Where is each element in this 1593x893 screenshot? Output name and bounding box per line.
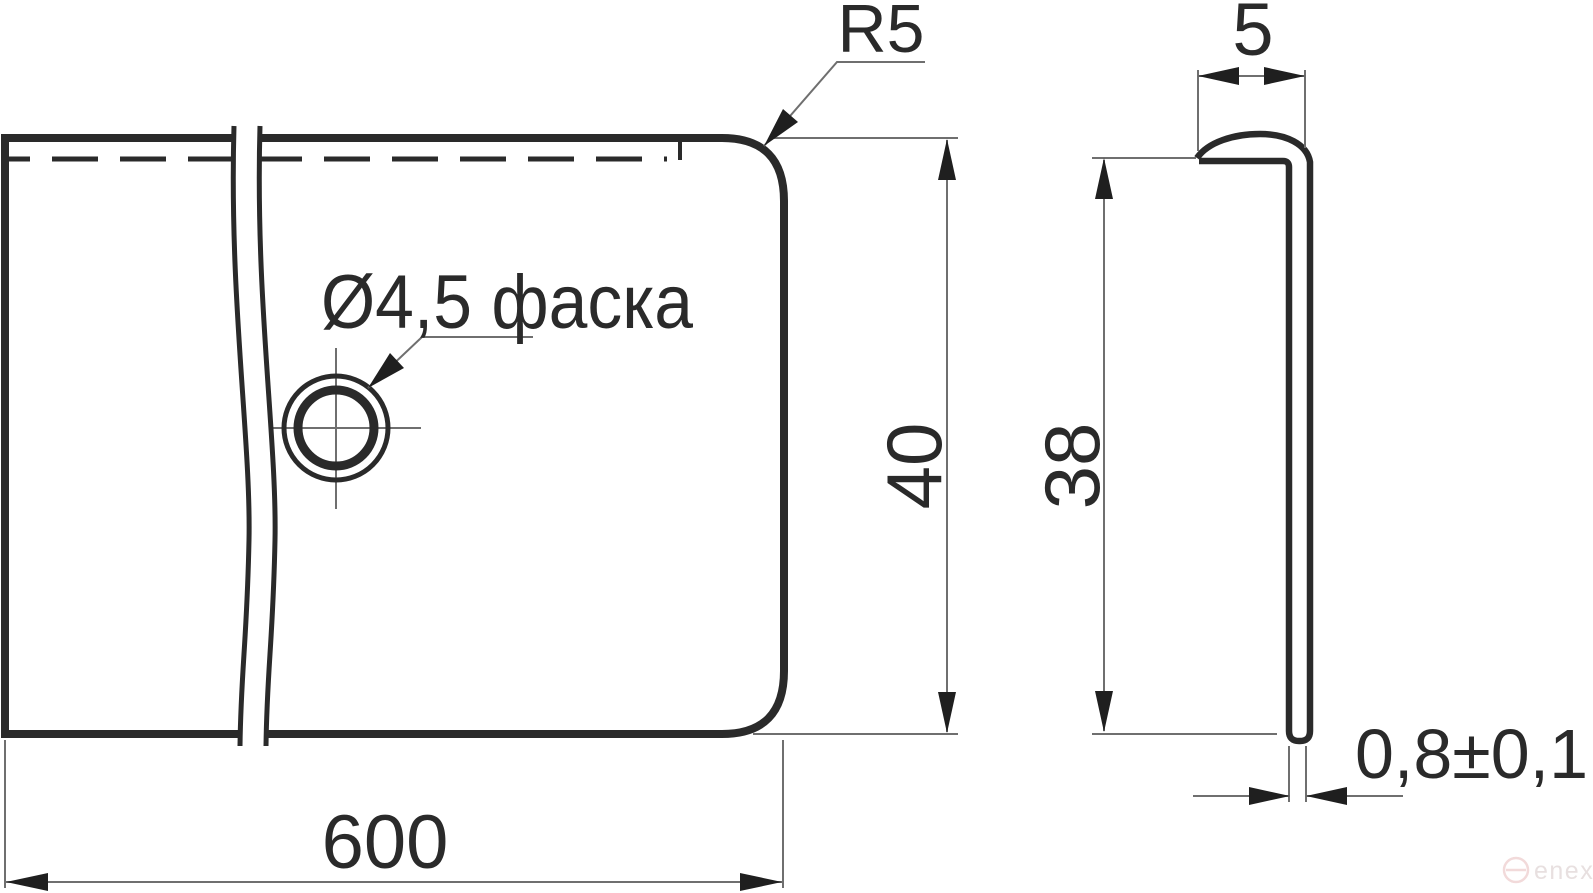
dimension-side-height-38: 38	[1028, 158, 1277, 734]
arrowhead-top	[1095, 158, 1113, 199]
dimension-text-side-height: 38	[1028, 423, 1116, 510]
arrowhead-right	[1306, 787, 1347, 805]
front-view-outline	[5, 138, 784, 734]
dimension-text-thickness: 0,8±0,1	[1355, 715, 1588, 793]
technical-drawing-canvas: 600 40 R5 Ø4,5 фаска	[0, 0, 1593, 893]
side-view-profile	[1197, 134, 1310, 741]
arrowhead-right	[740, 873, 782, 891]
dimension-text-radius: R5	[838, 0, 925, 67]
watermark-text: enex	[1534, 857, 1593, 885]
side-view	[1197, 134, 1310, 741]
dimension-flange-width-5: 5	[1198, 0, 1305, 151]
dimension-text-hole: Ø4,5 фаска	[321, 260, 694, 345]
dimension-corner-radius-r5: R5	[764, 0, 925, 146]
dimension-text-length: 600	[322, 800, 449, 885]
dimension-hole-callout: Ø4,5 фаска	[321, 260, 694, 388]
break-lines	[233, 126, 275, 746]
watermark: enex	[1504, 857, 1593, 885]
leader-line	[764, 62, 925, 146]
dimension-text-flange-width: 5	[1232, 0, 1273, 71]
arrowhead-bottom	[1095, 691, 1113, 732]
drawing-svg: 600 40 R5 Ø4,5 фаска	[0, 0, 1593, 893]
dimension-length-600: 600	[5, 740, 783, 891]
dimension-thickness: 0,8±0,1	[1193, 715, 1588, 805]
arrowhead-leader	[764, 109, 798, 146]
arrowhead-top	[938, 139, 956, 180]
arrowhead-left	[1249, 787, 1290, 805]
arrowhead-bottom	[938, 692, 956, 733]
front-view	[5, 126, 784, 746]
dimension-text-front-height: 40	[870, 423, 958, 510]
arrowhead-left	[6, 873, 48, 891]
